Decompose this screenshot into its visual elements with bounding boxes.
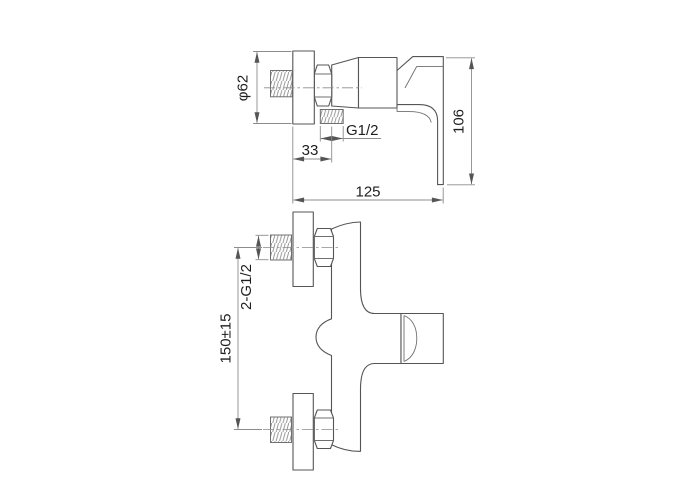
shower-mixer-drawing: φ62 G1/2 33 125 106 xyxy=(0,0,700,500)
handle-height-label: 106 xyxy=(451,109,468,134)
dim-outlet-thread: G1/2 xyxy=(320,122,381,142)
dim-handle-height: 106 xyxy=(446,58,475,185)
outlet-thread xyxy=(320,110,343,124)
overall-depth-label: 125 xyxy=(355,184,380,201)
cartridge-taper xyxy=(332,58,359,109)
dim-outlet-offset: 33 xyxy=(293,127,332,163)
valve-body xyxy=(359,58,398,109)
dim-overall-depth: 125 xyxy=(293,163,443,204)
inlet-thread-side xyxy=(271,71,293,97)
outlet-thread-label: G1/2 xyxy=(346,122,379,139)
outlet-offset-label: 33 xyxy=(302,142,319,159)
technical-drawing-page: φ62 G1/2 33 125 106 xyxy=(0,0,700,500)
lever-handle-plan xyxy=(401,314,443,364)
hex-nut-side xyxy=(314,65,331,106)
wall-flange-upper xyxy=(293,212,313,287)
plan-view: 2-G1/2 150±15 xyxy=(218,212,444,470)
inlet-spacing-label: 150±15 xyxy=(218,314,235,364)
inlet-threads-label: 2-G1/2 xyxy=(238,264,255,310)
wall-flange-lower xyxy=(293,394,313,471)
lever-handle xyxy=(397,57,443,185)
side-view: φ62 G1/2 33 125 106 xyxy=(235,51,476,204)
dim-inlet-threads: 2-G1/2 xyxy=(238,235,269,310)
flange-diameter-label: φ62 xyxy=(235,75,252,101)
